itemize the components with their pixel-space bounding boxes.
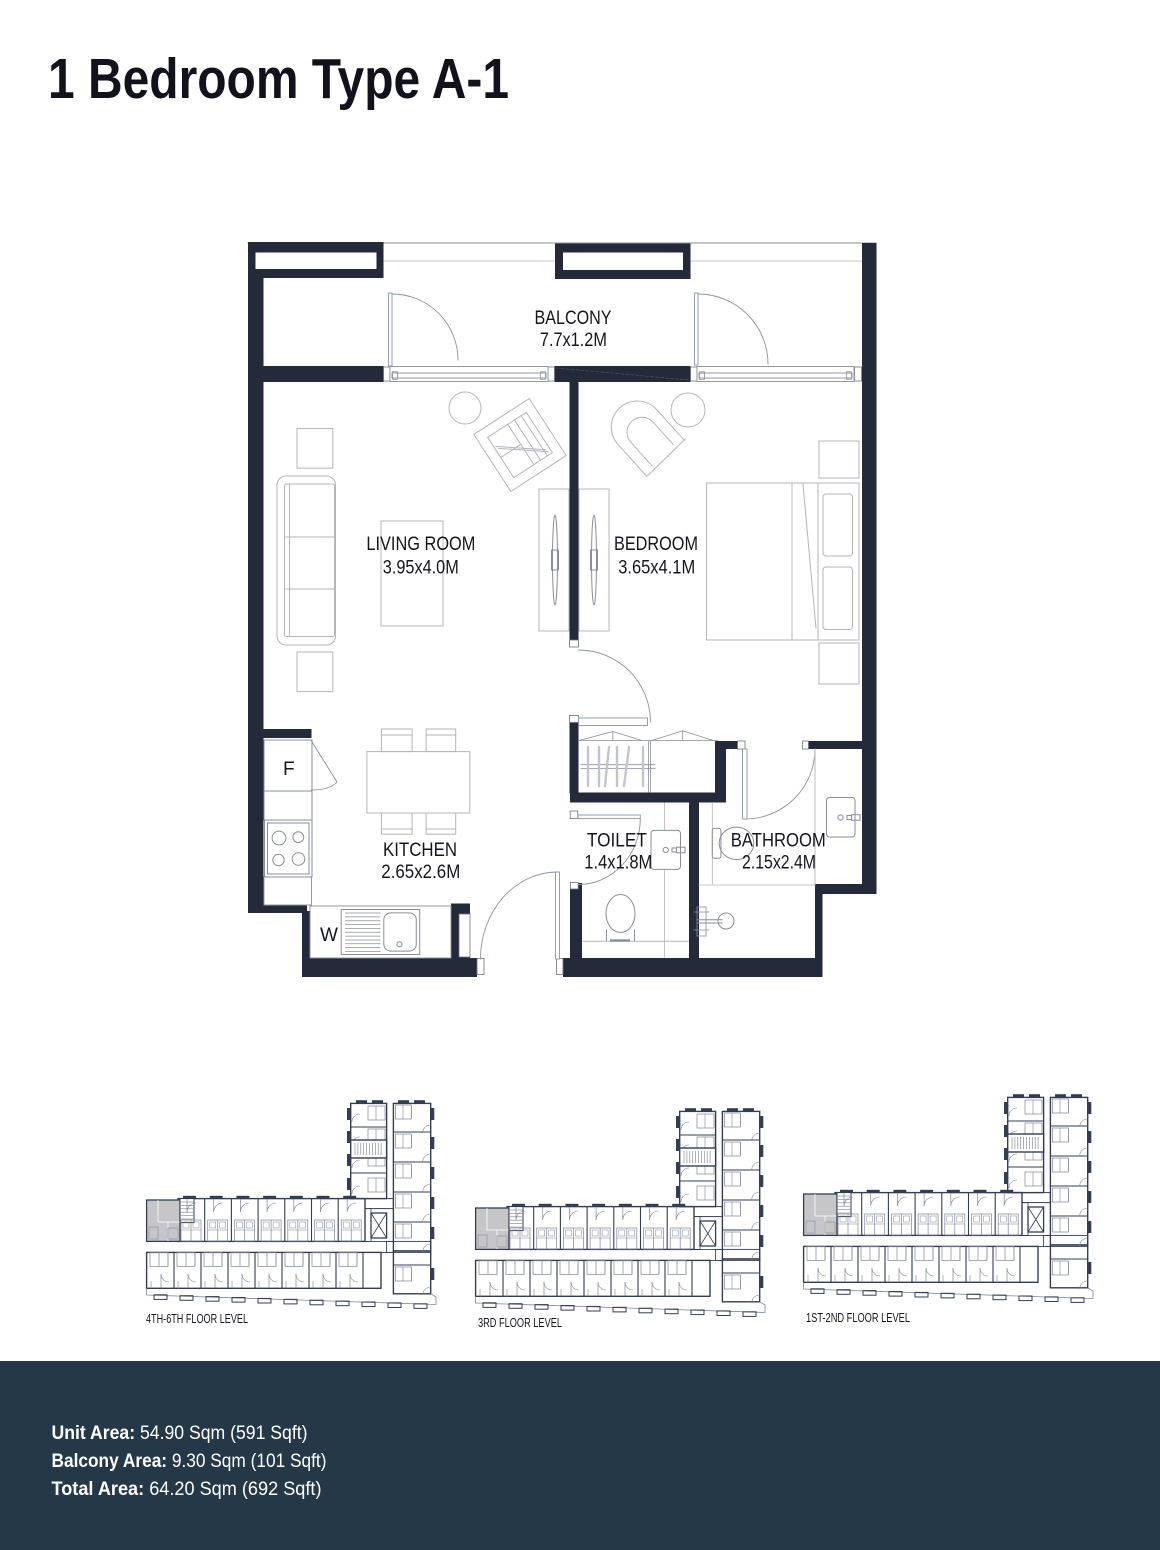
- svg-text:1 Bedroom Type A-1: 1 Bedroom Type A-1: [48, 47, 509, 111]
- svg-text:BEDROOM: BEDROOM: [614, 534, 698, 555]
- svg-text:W: W: [320, 925, 338, 946]
- svg-text:2.65x2.6M: 2.65x2.6M: [381, 862, 460, 883]
- svg-text:1ST-2ND FLOOR LEVEL: 1ST-2ND FLOOR LEVEL: [806, 1310, 910, 1325]
- svg-text:LIVING ROOM: LIVING ROOM: [366, 534, 475, 555]
- svg-text:BATHROOM: BATHROOM: [731, 831, 826, 852]
- svg-text:Balcony Area: 9.30 Sqm (101 Sq: Balcony Area: 9.30 Sqm (101 Sqft): [52, 1451, 327, 1472]
- svg-text:3RD FLOOR LEVEL: 3RD FLOOR LEVEL: [478, 1315, 562, 1330]
- svg-text:BALCONY: BALCONY: [535, 308, 612, 329]
- svg-text:F: F: [283, 759, 295, 780]
- svg-text:7.7x1.2M: 7.7x1.2M: [540, 330, 607, 351]
- svg-text:1.4x1.8M: 1.4x1.8M: [584, 853, 652, 874]
- svg-text:Unit Area: 54.90 Sqm (591 Sqft: Unit Area: 54.90 Sqm (591 Sqft): [52, 1423, 308, 1444]
- svg-text:3.65x4.1M: 3.65x4.1M: [618, 558, 695, 579]
- svg-text:Total Area: 64.20 Sqm (692 Sqf: Total Area: 64.20 Sqm (692 Sqft): [52, 1479, 322, 1500]
- svg-text:4TH-6TH FLOOR LEVEL: 4TH-6TH FLOOR LEVEL: [146, 1311, 248, 1326]
- svg-text:TOILET: TOILET: [587, 831, 647, 852]
- svg-text:3.95x4.0M: 3.95x4.0M: [383, 558, 459, 579]
- svg-text:KITCHEN: KITCHEN: [383, 840, 457, 861]
- svg-text:2.15x2.4M: 2.15x2.4M: [742, 853, 816, 874]
